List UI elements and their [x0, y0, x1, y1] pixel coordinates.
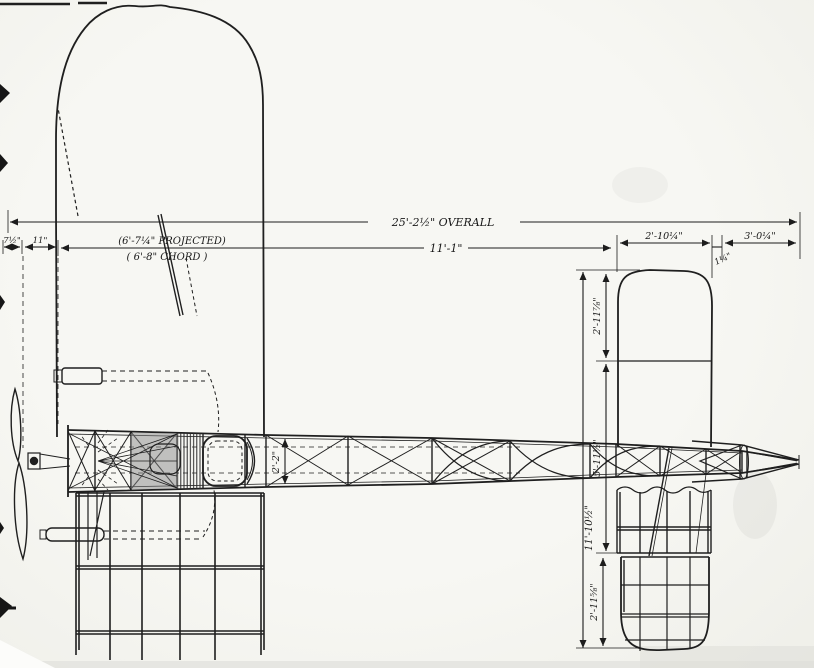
dim-tail-tip-lower-label: 2'-11⅝" — [589, 583, 600, 622]
propeller-blade-lower — [14, 463, 26, 559]
stabilizer-lower-grid — [617, 448, 711, 556]
cockpit-opening — [203, 436, 255, 486]
dim-stab-center-label: 5'-11½" — [592, 439, 603, 477]
dim-stab-chord-label: 2'-10¼" — [644, 231, 683, 242]
dim-overall-label: 25'-2½" OVERALL — [391, 216, 495, 229]
dim-chord-label: ( 6'-8" CHORD ) — [127, 252, 208, 263]
propeller — [11, 389, 70, 559]
dim-chord-projected-label: (6'-7¼" PROJECTED) — [118, 236, 226, 247]
dim-tail-tip-upper-label: 2'-11⅞" — [592, 297, 603, 336]
wing-root-spar-line — [158, 214, 183, 316]
photo-edge-artifacts — [0, 3, 814, 668]
elevator-grid — [621, 557, 709, 651]
monoplane-plan-view: 25'-2½" OVERALL 7½" 11" (6'-7¼" PROJECTE… — [0, 0, 814, 668]
dimension-lines-horizontal: 25'-2½" OVERALL 7½" 11" (6'-7¼" PROJECTE… — [3, 210, 800, 278]
dim-fuselage-width-label: 2'-2" — [271, 451, 282, 474]
wing-warp-line — [58, 108, 78, 216]
gear-strut-upper — [62, 368, 102, 384]
dim-prop-offset-label: 7½" — [3, 235, 21, 246]
dim-rudder-length-label: 3'-0¼" — [744, 231, 776, 242]
dim-prop-to-wing-label: 11" — [33, 236, 48, 246]
wing-panel-upper — [56, 5, 264, 437]
dim-fuselage-rear-label: 11'-1" — [430, 242, 463, 255]
dim-tail-span-label: 11'-10½" — [584, 505, 595, 551]
propeller-blade-upper — [11, 389, 21, 461]
stabilizer-upper — [618, 270, 712, 447]
dim-hinge-gap-label: 1¼" — [713, 250, 734, 267]
hatched-panel — [178, 433, 203, 489]
scanned-drawing-page: 25'-2½" OVERALL 7½" 11" (6'-7¼" PROJECTE… — [0, 0, 814, 668]
wing-panel-lower-grid — [76, 493, 264, 660]
